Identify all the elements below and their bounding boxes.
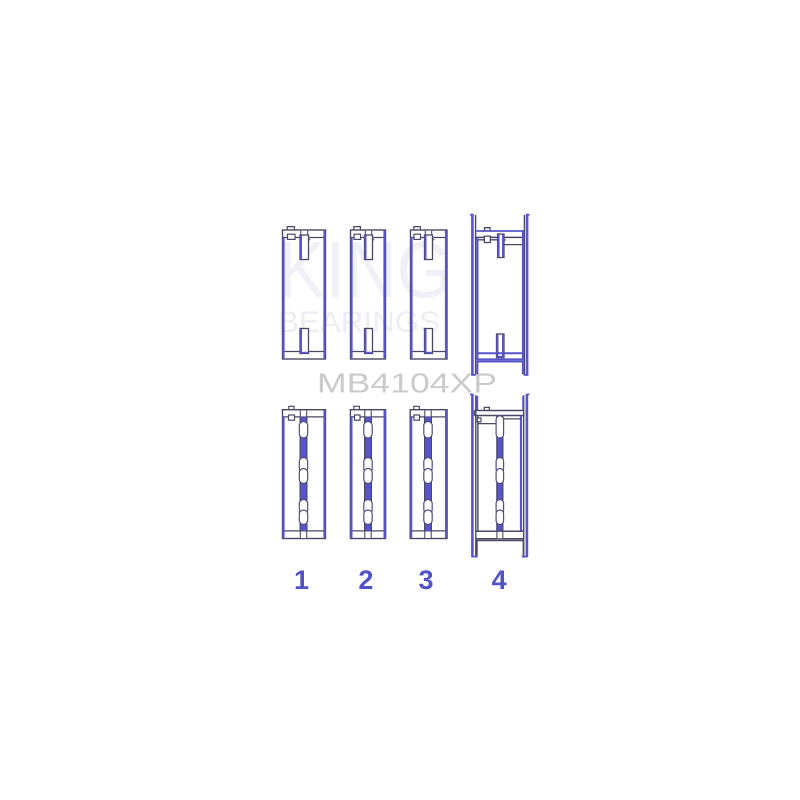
svg-text:2: 2: [358, 565, 373, 595]
svg-text:4: 4: [492, 565, 507, 595]
svg-text:1: 1: [294, 565, 309, 595]
svg-text:3: 3: [418, 565, 433, 595]
